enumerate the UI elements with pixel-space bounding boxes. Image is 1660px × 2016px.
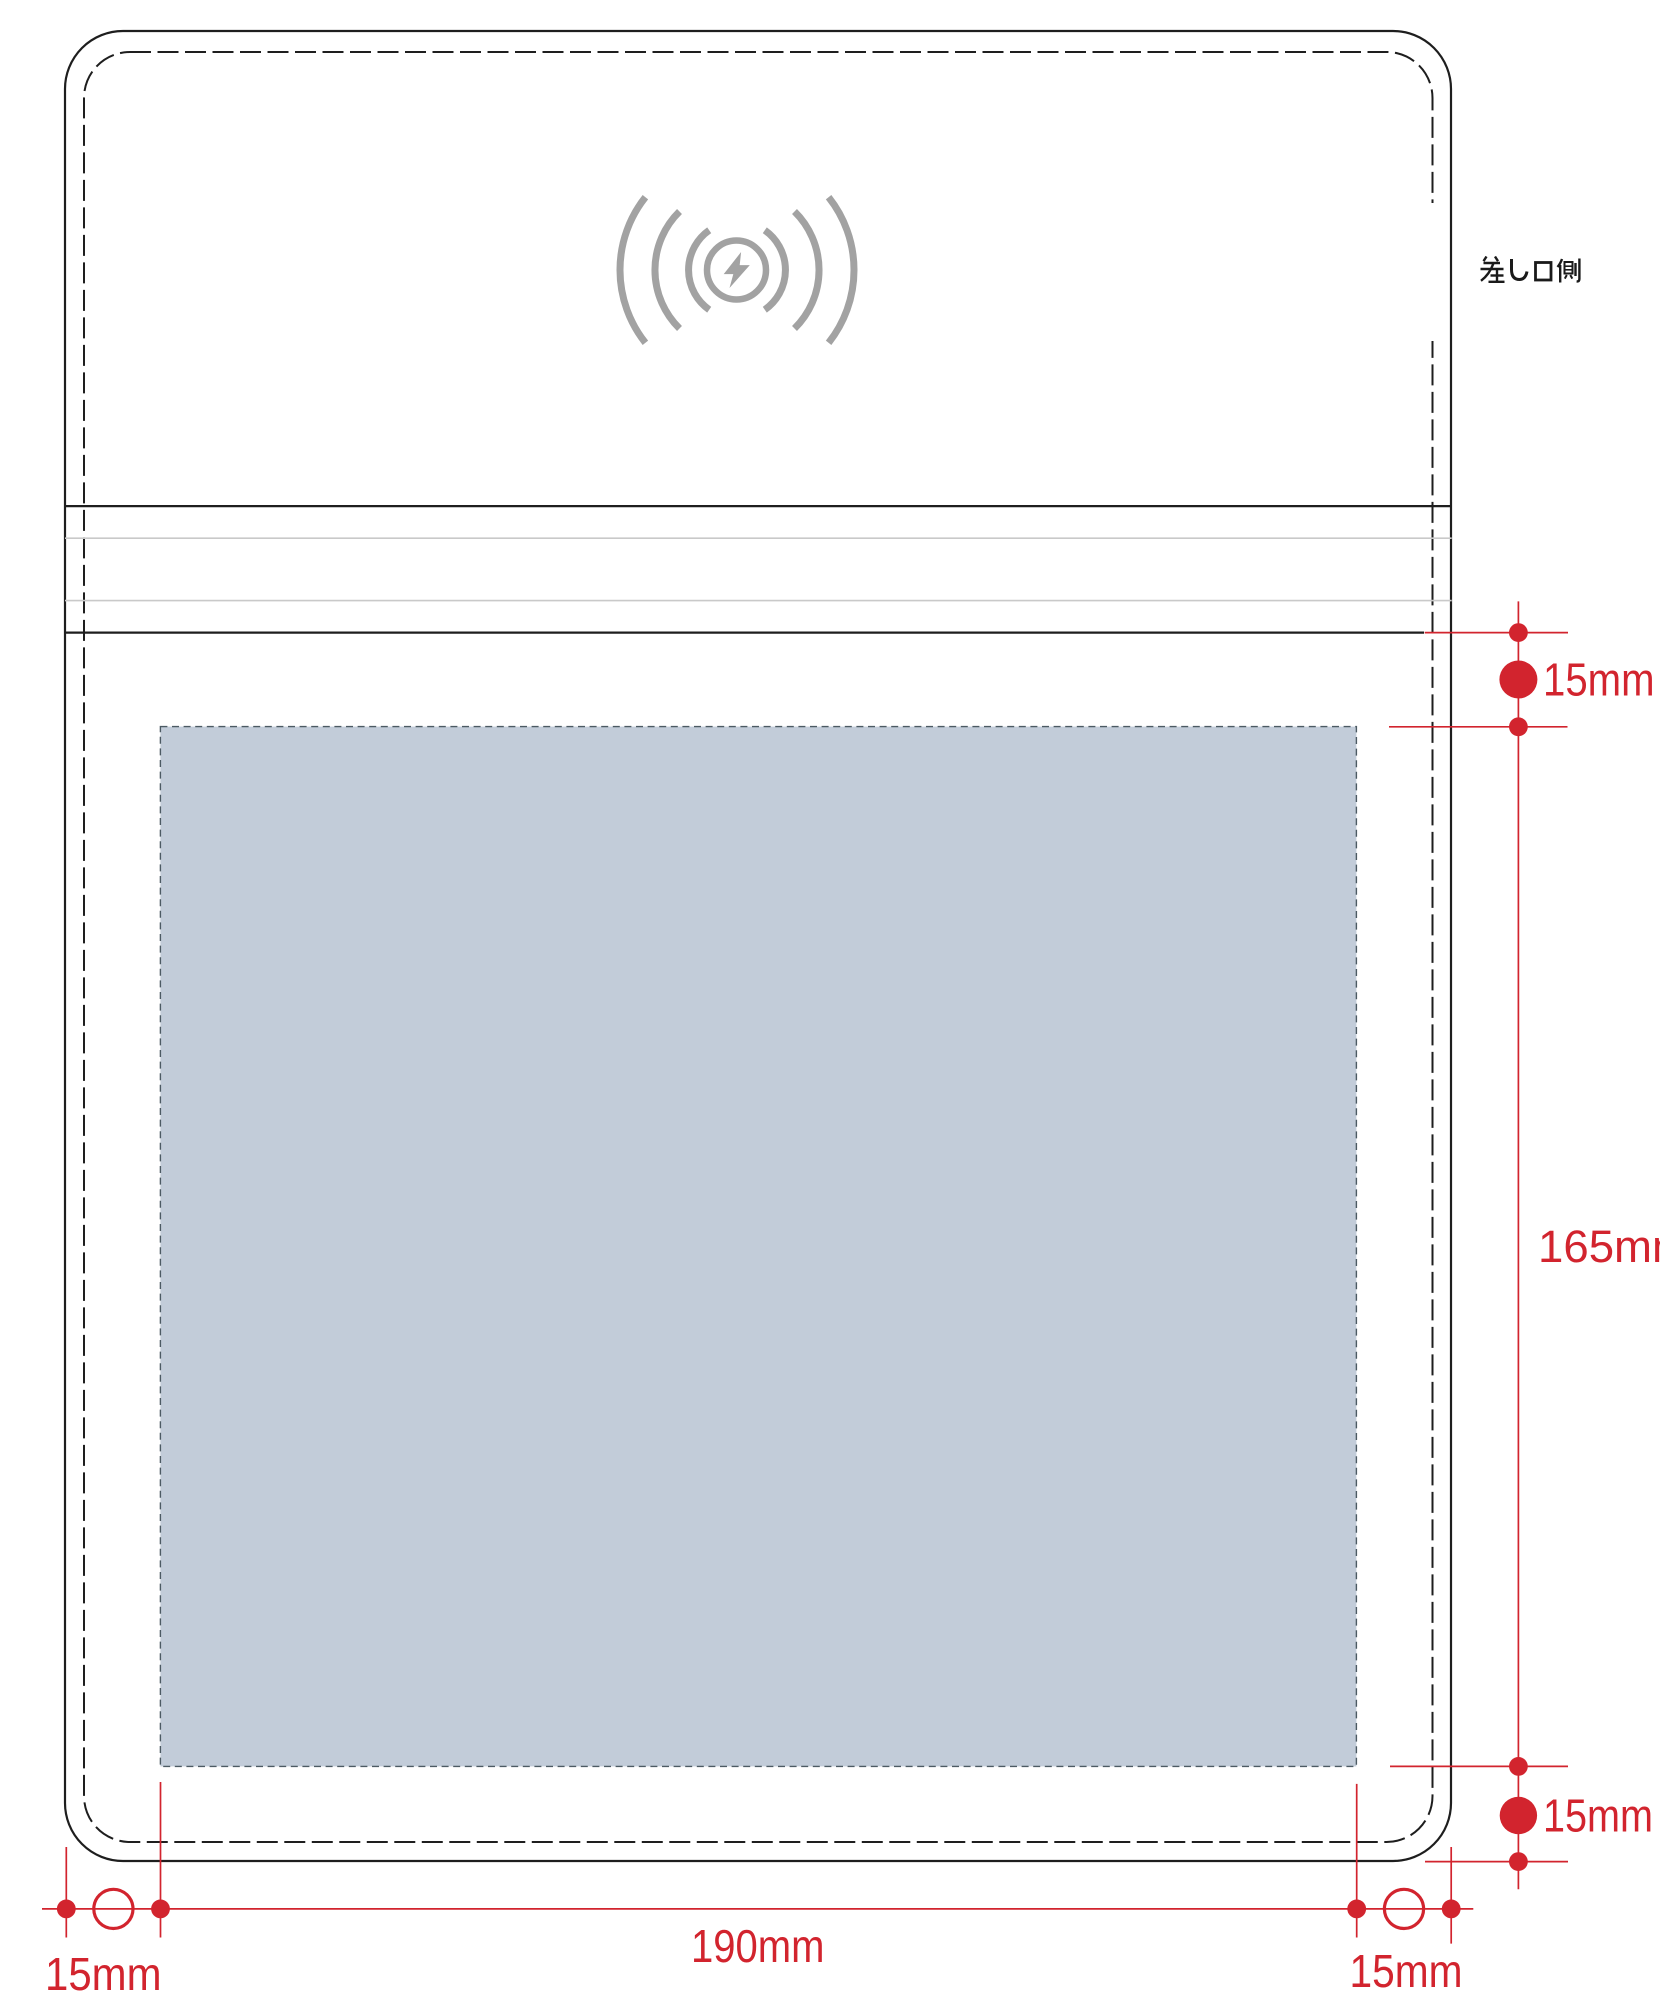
- svg-text:15mm: 15mm: [1543, 654, 1655, 706]
- svg-text:190mm: 190mm: [691, 1920, 825, 1972]
- svg-text:15mm: 15mm: [1350, 1945, 1463, 1997]
- svg-text:165mm: 165mm: [1538, 1221, 1660, 1272]
- svg-text:15mm: 15mm: [45, 1948, 162, 2000]
- svg-text:15mm: 15mm: [1543, 1790, 1653, 1842]
